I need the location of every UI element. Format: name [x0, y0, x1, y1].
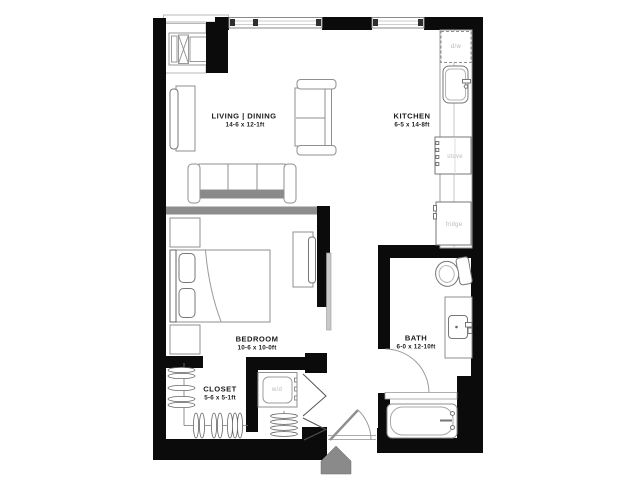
bed	[170, 250, 270, 322]
bathroom-vanity	[445, 297, 472, 358]
room-label-kitchen: KITCHEN	[394, 112, 431, 121]
sliding-door	[327, 253, 332, 330]
label-stove: stove	[447, 154, 463, 160]
room-dims-kitchen: 6-5 x 14-8ft	[394, 122, 429, 129]
sofa	[188, 164, 296, 203]
room-label-closet: CLOSET	[203, 385, 237, 394]
floor-plan: LIVING | DINING 14-6 x 12-1ft KITCHEN 6-…	[0, 0, 634, 480]
room-label-bath: BATH	[405, 334, 427, 343]
wd-closet-hangers	[271, 411, 298, 437]
tv-console	[170, 86, 195, 151]
bathtub	[387, 404, 457, 438]
room-label-bedroom: BEDROOM	[236, 335, 279, 344]
room-dims-bedroom: 10-6 x 10-0ft	[237, 345, 276, 352]
label-dishwasher: d/w	[451, 44, 461, 50]
label-washer-dryer: w/d	[272, 387, 282, 393]
label-fridge: fridge	[446, 222, 463, 228]
window-1	[229, 18, 322, 29]
partition-wall	[166, 207, 317, 215]
room-dims-bath: 6-0 x 12-10ft	[396, 344, 435, 351]
floor-plan-drawing	[0, 0, 634, 480]
kitchen-sink	[443, 66, 471, 103]
room-dims-living-dining: 14-6 x 12-1ft	[225, 122, 264, 129]
toilet	[433, 256, 472, 289]
room-label-living-dining: LIVING | DINING	[212, 112, 277, 121]
loveseat	[295, 80, 336, 156]
dresser	[293, 232, 316, 287]
window-2	[372, 18, 424, 29]
room-dims-closet: 5-6 x 5-1ft	[204, 395, 236, 402]
entry-door	[328, 410, 376, 440]
